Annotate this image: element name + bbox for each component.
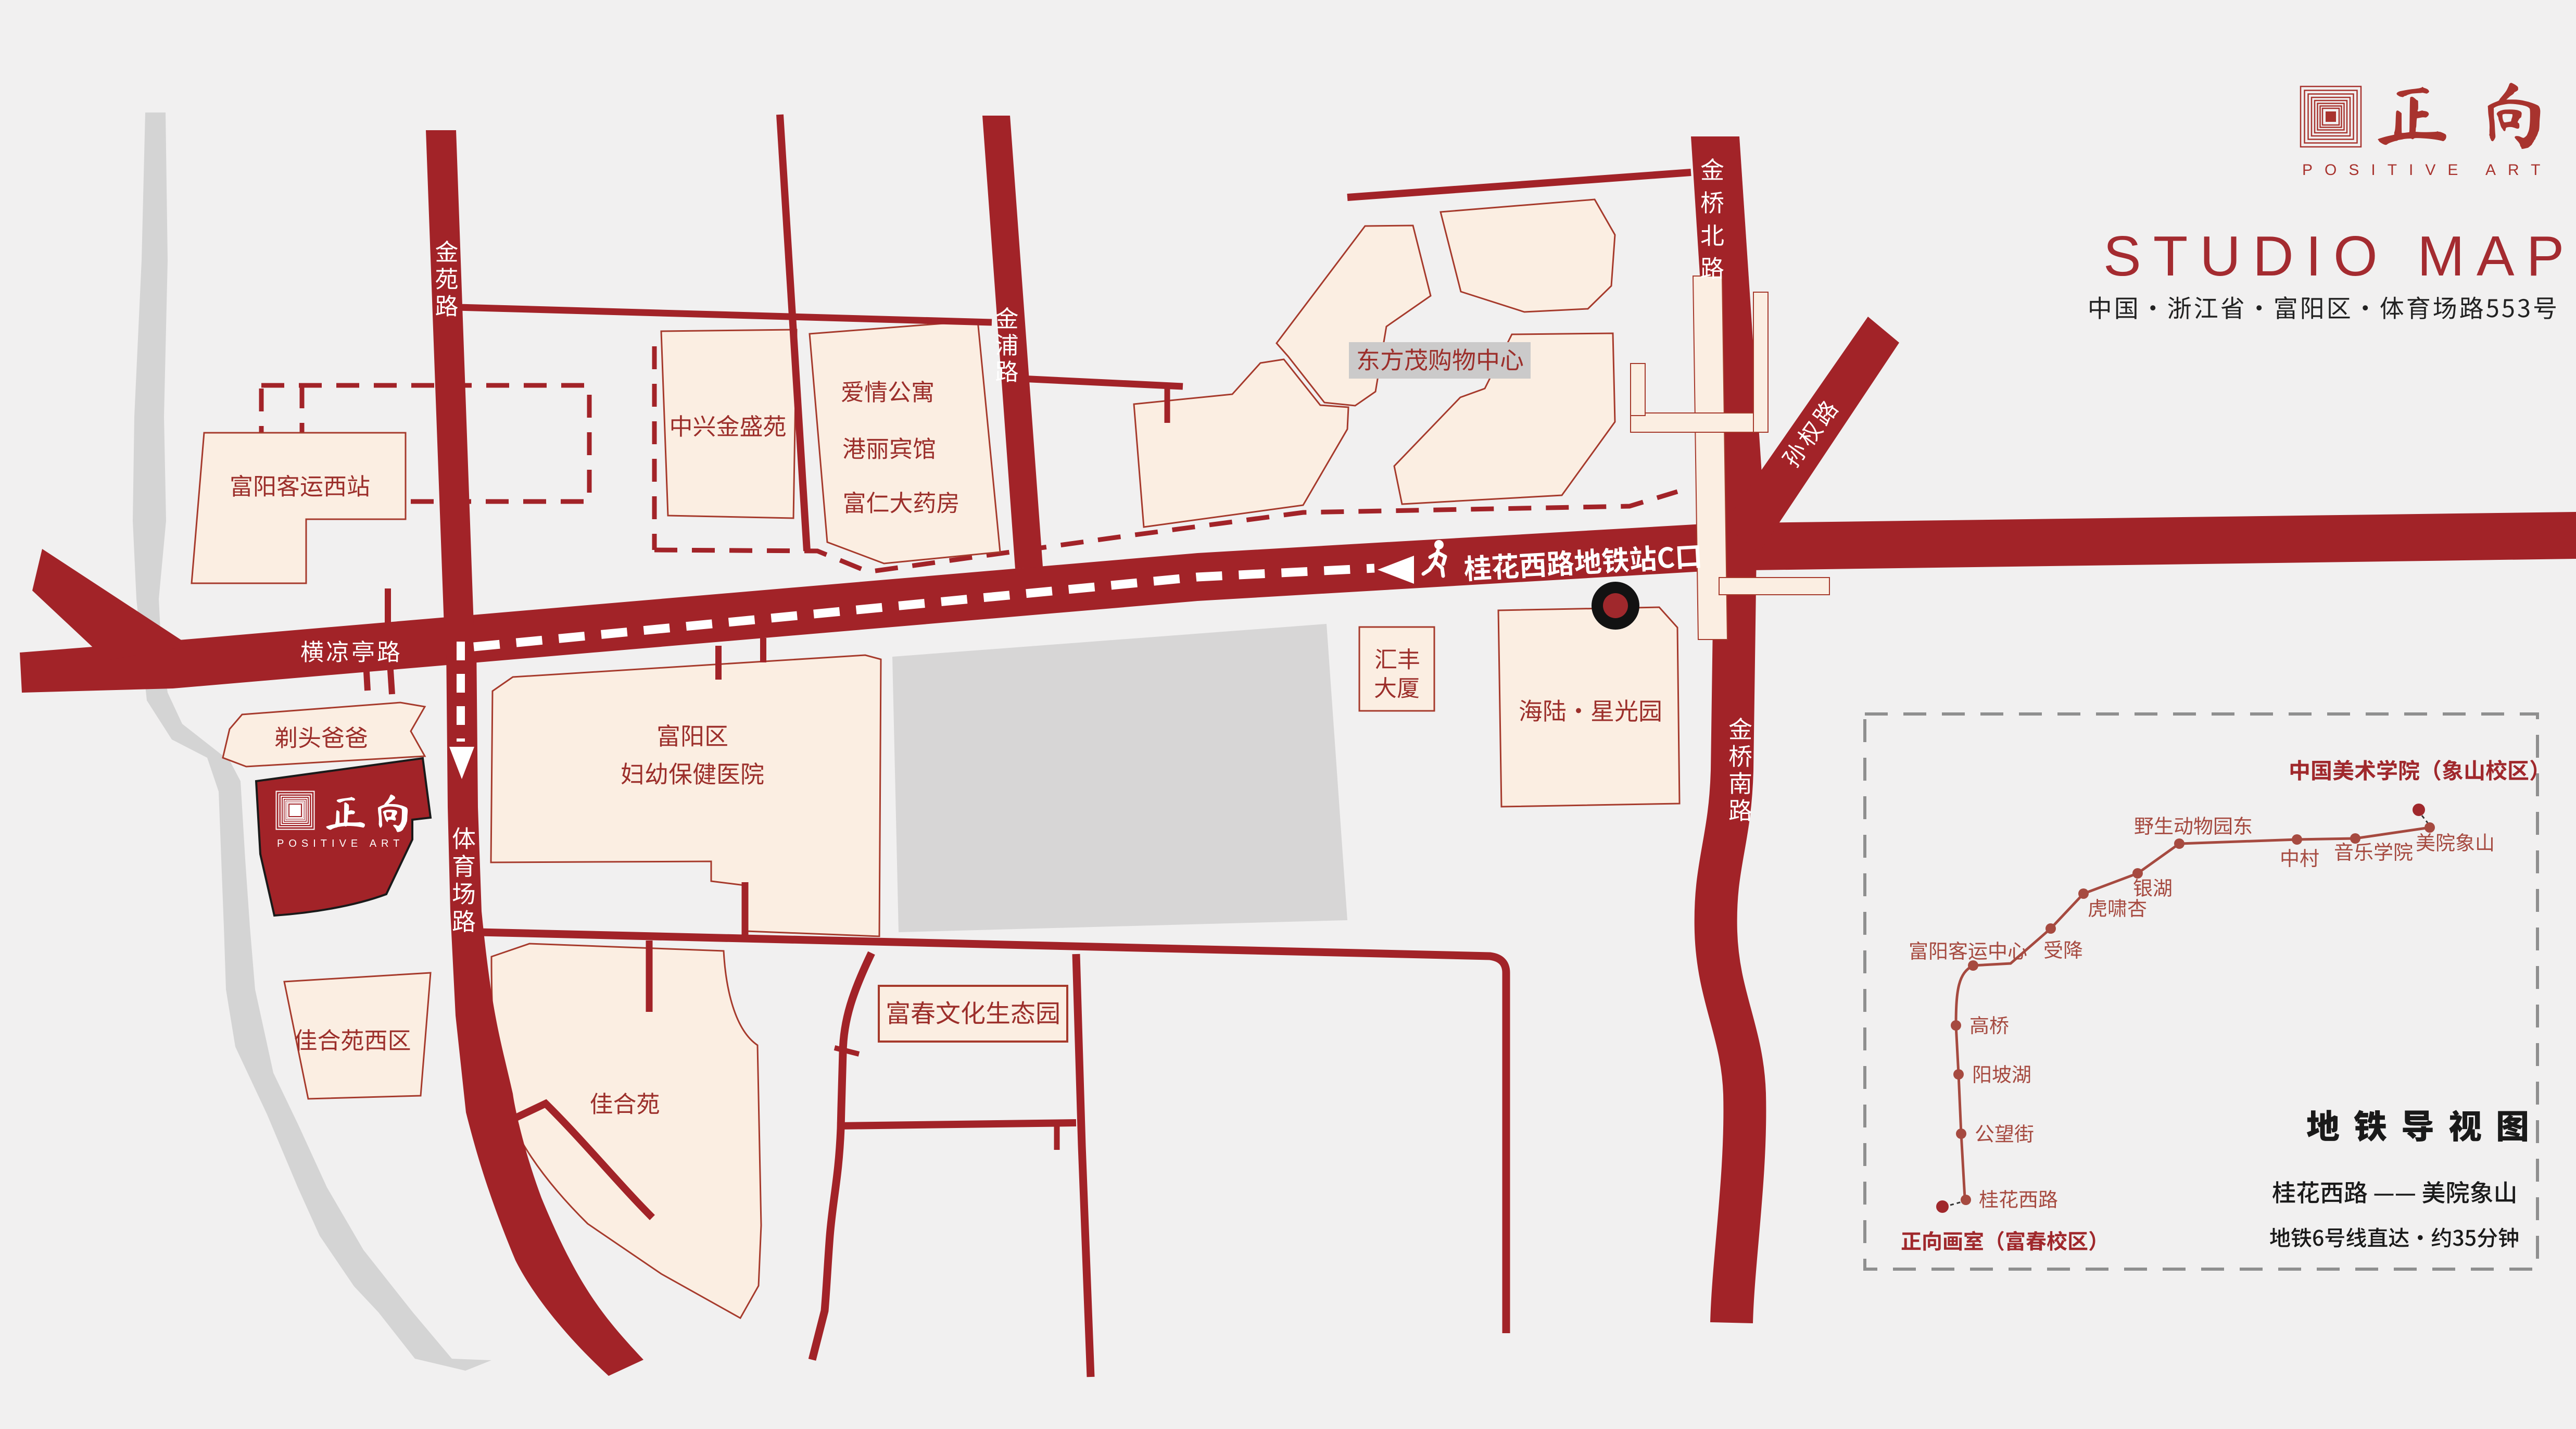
svg-text:STUDIO MAP: STUDIO MAP [2103,224,2576,288]
svg-text:POSITIVE ART: POSITIVE ART [2302,161,2553,179]
svg-text:POSITIVE ART: POSITIVE ART [277,838,404,849]
